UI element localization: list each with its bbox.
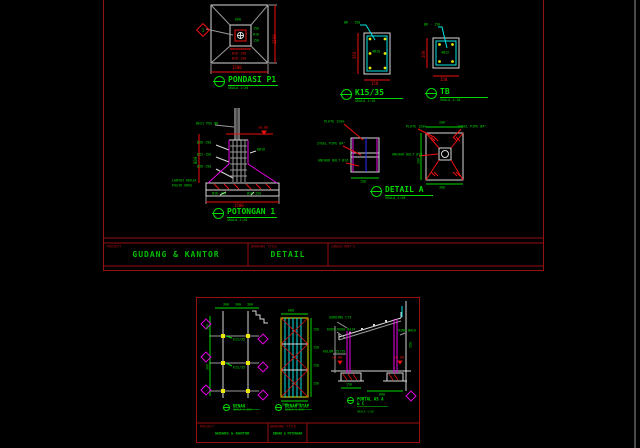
rebar-note: Ø12-150 (197, 153, 211, 156)
drawing-title-potongan: POTONGAN 1SKALA 1:20 (213, 207, 277, 227)
dim-label: 150 (360, 180, 366, 183)
title-bubble-icon (341, 89, 352, 100)
elevation-label: ±0.00 (258, 126, 268, 129)
rebar-note: BESI POS Ø6 (196, 122, 218, 125)
dim-label: 300 (206, 324, 209, 330)
column-note: K15/35 (233, 366, 245, 369)
dim-label: 200 (417, 158, 420, 164)
rebar-note: Ø16-150 (197, 165, 211, 168)
dim-label: 300 (247, 303, 253, 306)
rebar-note: Ø8 - 150 (344, 21, 360, 24)
callout-note: ANCHOR BOLT Ø16 (318, 159, 348, 162)
cad-canvas: 1 600 150 Ø16 150 Ø16-150 Ø16-150 1500 1… (0, 0, 640, 448)
dim-label: 1500 (273, 34, 277, 44)
dim-label: 600 (235, 18, 241, 21)
dim-label: 600 (379, 393, 385, 396)
dim-label: 150 (371, 82, 378, 86)
title-bubble-icon (371, 186, 382, 197)
dim-label: 300 (223, 303, 229, 306)
sheet-denah-potongan[interactable]: 300 300 300 300 300 K15/35 K15/35 DENAHS… (196, 297, 420, 443)
dim-label: 350 (353, 52, 357, 59)
dim-label: 150 (313, 364, 319, 367)
rebar-note: Ø16-150 (197, 141, 211, 144)
dim-label: 200 (439, 121, 445, 124)
detail-sheet-linework (104, 0, 543, 270)
dim-label: 200 (422, 51, 426, 58)
column-note: K15/35 (233, 338, 245, 341)
rebar-note: 4Ø12 (441, 51, 449, 54)
rebar-note: Ø8 - 150 (424, 23, 440, 26)
rebar-note: 4Ø10 (372, 50, 380, 53)
rebar-note: Ø16-150 (212, 192, 226, 195)
title-bubble-icon (347, 397, 354, 404)
dim-label: 300 (206, 364, 209, 370)
callout-note: ANCHOR BOLT Ø16 (392, 153, 422, 156)
titleblock-drawing-title: DENAH & POTONGAN (268, 427, 307, 440)
titleblock-drawing-title: DETAIL (248, 246, 328, 263)
drawing-title-denah-atap: DENAH ATAPSKALA 1:100 (275, 404, 338, 417)
callout-note: RING BALK (398, 329, 416, 332)
dim-label: 150 (440, 78, 447, 82)
callout-note: KUDA-KUDA BAJA (327, 328, 355, 331)
dim-label: 300 (235, 303, 241, 306)
drawing-title-k15: K15/35SKALA 1:10 (341, 88, 403, 108)
title-bubble-icon (223, 404, 230, 411)
titleblock-field-label: CONSULTANT'S (331, 245, 355, 248)
rebar-note: 150 (253, 27, 259, 30)
rebar-note: Ø16-150 (247, 192, 261, 195)
title-bubble-icon (275, 404, 282, 411)
titleblock-project: GUDANG & KANTOR (197, 427, 268, 440)
drawing-title-portal: PORTAL AS A & CSKALA 1:50 (347, 397, 419, 419)
callout-note: PLATE 12mm (324, 120, 344, 123)
sheet-detail[interactable]: 1 600 150 Ø16 150 Ø16-150 Ø16-150 1500 1… (103, 0, 544, 271)
callout-note: PLATE 12mm (406, 125, 426, 128)
elevation-label: ±0.00 (332, 356, 342, 359)
callout-note: STEEL PIPE Ø4" (317, 142, 345, 145)
elevation-label: ±0.00 (394, 356, 404, 359)
drawing-title-tb: TBSKALA 1:10 (426, 87, 488, 107)
window-edge (634, 0, 636, 448)
material-note: PASIR URUG (172, 184, 192, 187)
dim-label: 150 (313, 346, 319, 349)
dim-label: 150 (346, 383, 352, 386)
dim-label: 1500 (232, 66, 242, 70)
dim-label: 800 (194, 157, 198, 164)
rebar-note: Ø16-150 (232, 52, 246, 55)
drawing-title-detail-a: DETAIL ASKALA 1:20 (371, 185, 433, 205)
section-marker-number: 1 (202, 28, 204, 33)
title-bubble-icon (214, 76, 225, 87)
dim-label: 600 (288, 309, 294, 312)
callout-note: KOLOM 15/35 (323, 350, 345, 353)
denah-sheet-linework (197, 298, 419, 442)
dim-label: 300 (439, 186, 445, 189)
dim-label: 150 (313, 382, 319, 385)
rebar-note: Ø16-150 (232, 57, 246, 60)
rebar-note: 150 (253, 39, 259, 42)
titleblock-project: GUDANG & KANTOR (104, 246, 248, 263)
drawing-title-pondasi: PONDASI P1SKALA 1:20 (214, 75, 278, 95)
material-note: LANTAI KERJA (172, 179, 196, 182)
title-bubble-icon (426, 88, 437, 99)
rebar-note: Ø16 (253, 33, 259, 36)
rebar-note: 8Ø16 (257, 148, 265, 151)
callout-note: GORDING C75 (329, 316, 351, 319)
callout-note: STEEL PIPE Ø4" (458, 125, 486, 128)
dim-label: 150 (313, 328, 319, 331)
dim-label: 350 (409, 342, 412, 348)
title-bubble-icon (213, 208, 224, 219)
